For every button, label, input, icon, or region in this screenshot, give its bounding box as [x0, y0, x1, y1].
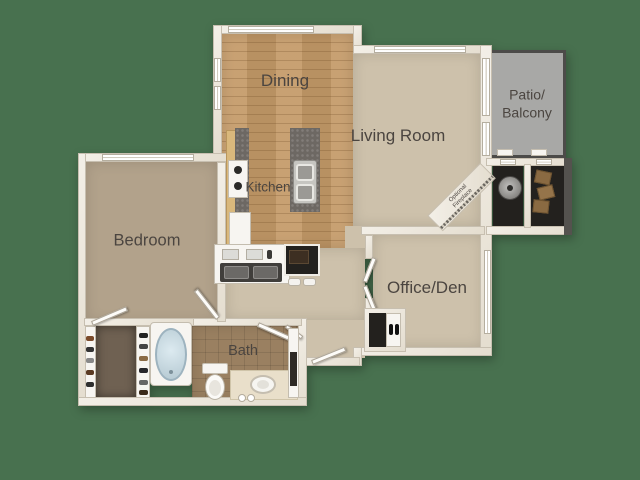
wall-office-top — [361, 226, 485, 235]
stove-burner — [234, 182, 242, 190]
closet-shoes — [86, 358, 94, 363]
patio-balcony-label: Patio/ Balcony — [502, 87, 552, 122]
prep-sink-basin — [253, 266, 278, 279]
dish-rack — [222, 249, 239, 260]
kitchen-sink-basin — [296, 164, 314, 181]
office-den-label: Office/Den — [387, 278, 467, 298]
wall-bath-right — [298, 318, 307, 406]
vanity-knob — [238, 394, 246, 402]
patio-label-line2: Balcony — [502, 104, 552, 120]
closet-shoes — [139, 380, 148, 385]
closet-shoes — [139, 390, 148, 395]
wall-storage-divider — [524, 164, 531, 228]
patio-label-line1: Patio/ — [509, 87, 545, 103]
floor-plan-canvas: Optional Fireplace Dining Living Room Pa… — [0, 0, 640, 480]
dining-left-window-2 — [214, 86, 221, 110]
utility-closet-door-mark — [500, 159, 516, 165]
water-heater-cap — [507, 185, 513, 191]
living-room-window — [374, 46, 466, 53]
kitchen-sink-basin — [296, 184, 314, 201]
kitchen-label: Kitchen — [245, 180, 290, 195]
bathtub-drain — [169, 370, 173, 374]
wall-bath-top — [186, 318, 302, 326]
wall-office-left-upper — [365, 235, 373, 259]
toilet-tank — [202, 363, 228, 374]
linen-shelf-items — [290, 352, 297, 386]
dish-rack — [246, 249, 263, 260]
patio-threshold-1 — [497, 149, 513, 156]
vanity-knob — [247, 394, 255, 402]
closet-shoes — [139, 356, 148, 361]
laundry-basket — [303, 278, 316, 286]
closet-shoes — [139, 344, 148, 349]
dining-window — [228, 26, 314, 33]
living-room-label: Living Room — [351, 126, 446, 146]
patio-threshold-2 — [531, 149, 547, 156]
walkin-closet-floor — [96, 326, 136, 398]
patio-sliding-glass-door — [482, 58, 490, 116]
storage-box — [532, 199, 549, 214]
wall-entry-bottom — [298, 357, 360, 366]
storage-closet-door-mark — [536, 159, 552, 165]
closet-shoes — [86, 347, 94, 352]
bedroom-window — [102, 154, 194, 161]
stove-burner — [234, 166, 242, 174]
bedroom-label: Bedroom — [114, 232, 181, 251]
wall-storage-right — [564, 158, 572, 235]
wall-bedroom-right — [217, 162, 226, 322]
wall-left-outer — [78, 153, 86, 406]
closet-shoes — [86, 370, 94, 375]
office-closet-shoe — [395, 324, 399, 335]
office-closet-shoe — [389, 324, 393, 335]
toilet-seat — [209, 380, 221, 396]
closet-shoes — [139, 368, 148, 373]
dining-label: Dining — [261, 71, 309, 91]
prep-sink-basin — [224, 266, 249, 279]
closet-shoes — [86, 382, 94, 387]
dining-left-window-1 — [214, 58, 221, 82]
patio-sliding-glass-door-2 — [482, 122, 490, 156]
office-window — [484, 250, 491, 334]
office-closet-interior — [369, 313, 386, 347]
floor-plan: Optional Fireplace Dining Living Room Pa… — [0, 0, 640, 480]
closet-shoes — [86, 336, 94, 341]
bath-label: Bath — [228, 343, 258, 359]
closet-shoes — [139, 333, 148, 338]
faucet — [267, 250, 272, 259]
washer-dryer-lid — [289, 250, 309, 264]
refrigerator — [229, 212, 251, 248]
vanity-sink-basin — [257, 380, 269, 389]
laundry-basket — [288, 278, 301, 286]
